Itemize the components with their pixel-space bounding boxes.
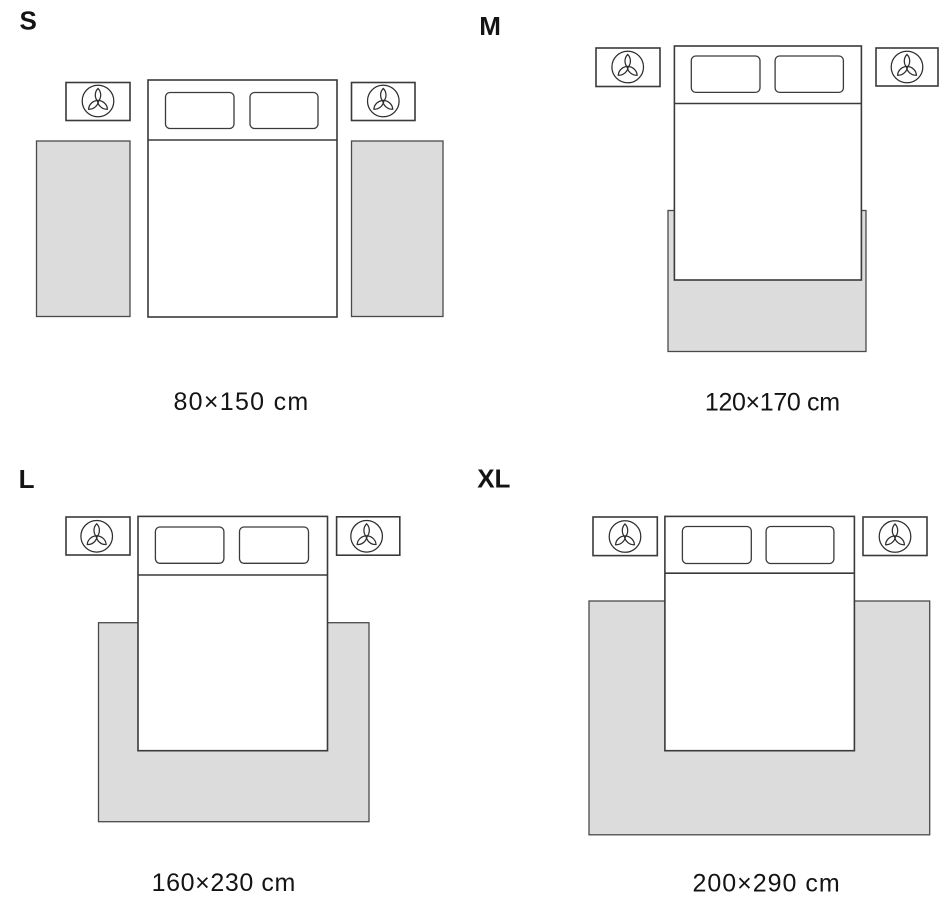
svg-text:80×150 cm: 80×150 cm [173,388,309,416]
svg-text:200×290 cm: 200×290 cm [692,870,840,898]
svg-text:S: S [20,6,37,36]
svg-text:M: M [479,11,501,41]
svg-text:XL: XL [477,464,510,494]
svg-text:120×170 cm: 120×170 cm [705,388,840,416]
svg-text:160×230 cm: 160×230 cm [152,869,296,897]
svg-text:L: L [19,464,35,494]
